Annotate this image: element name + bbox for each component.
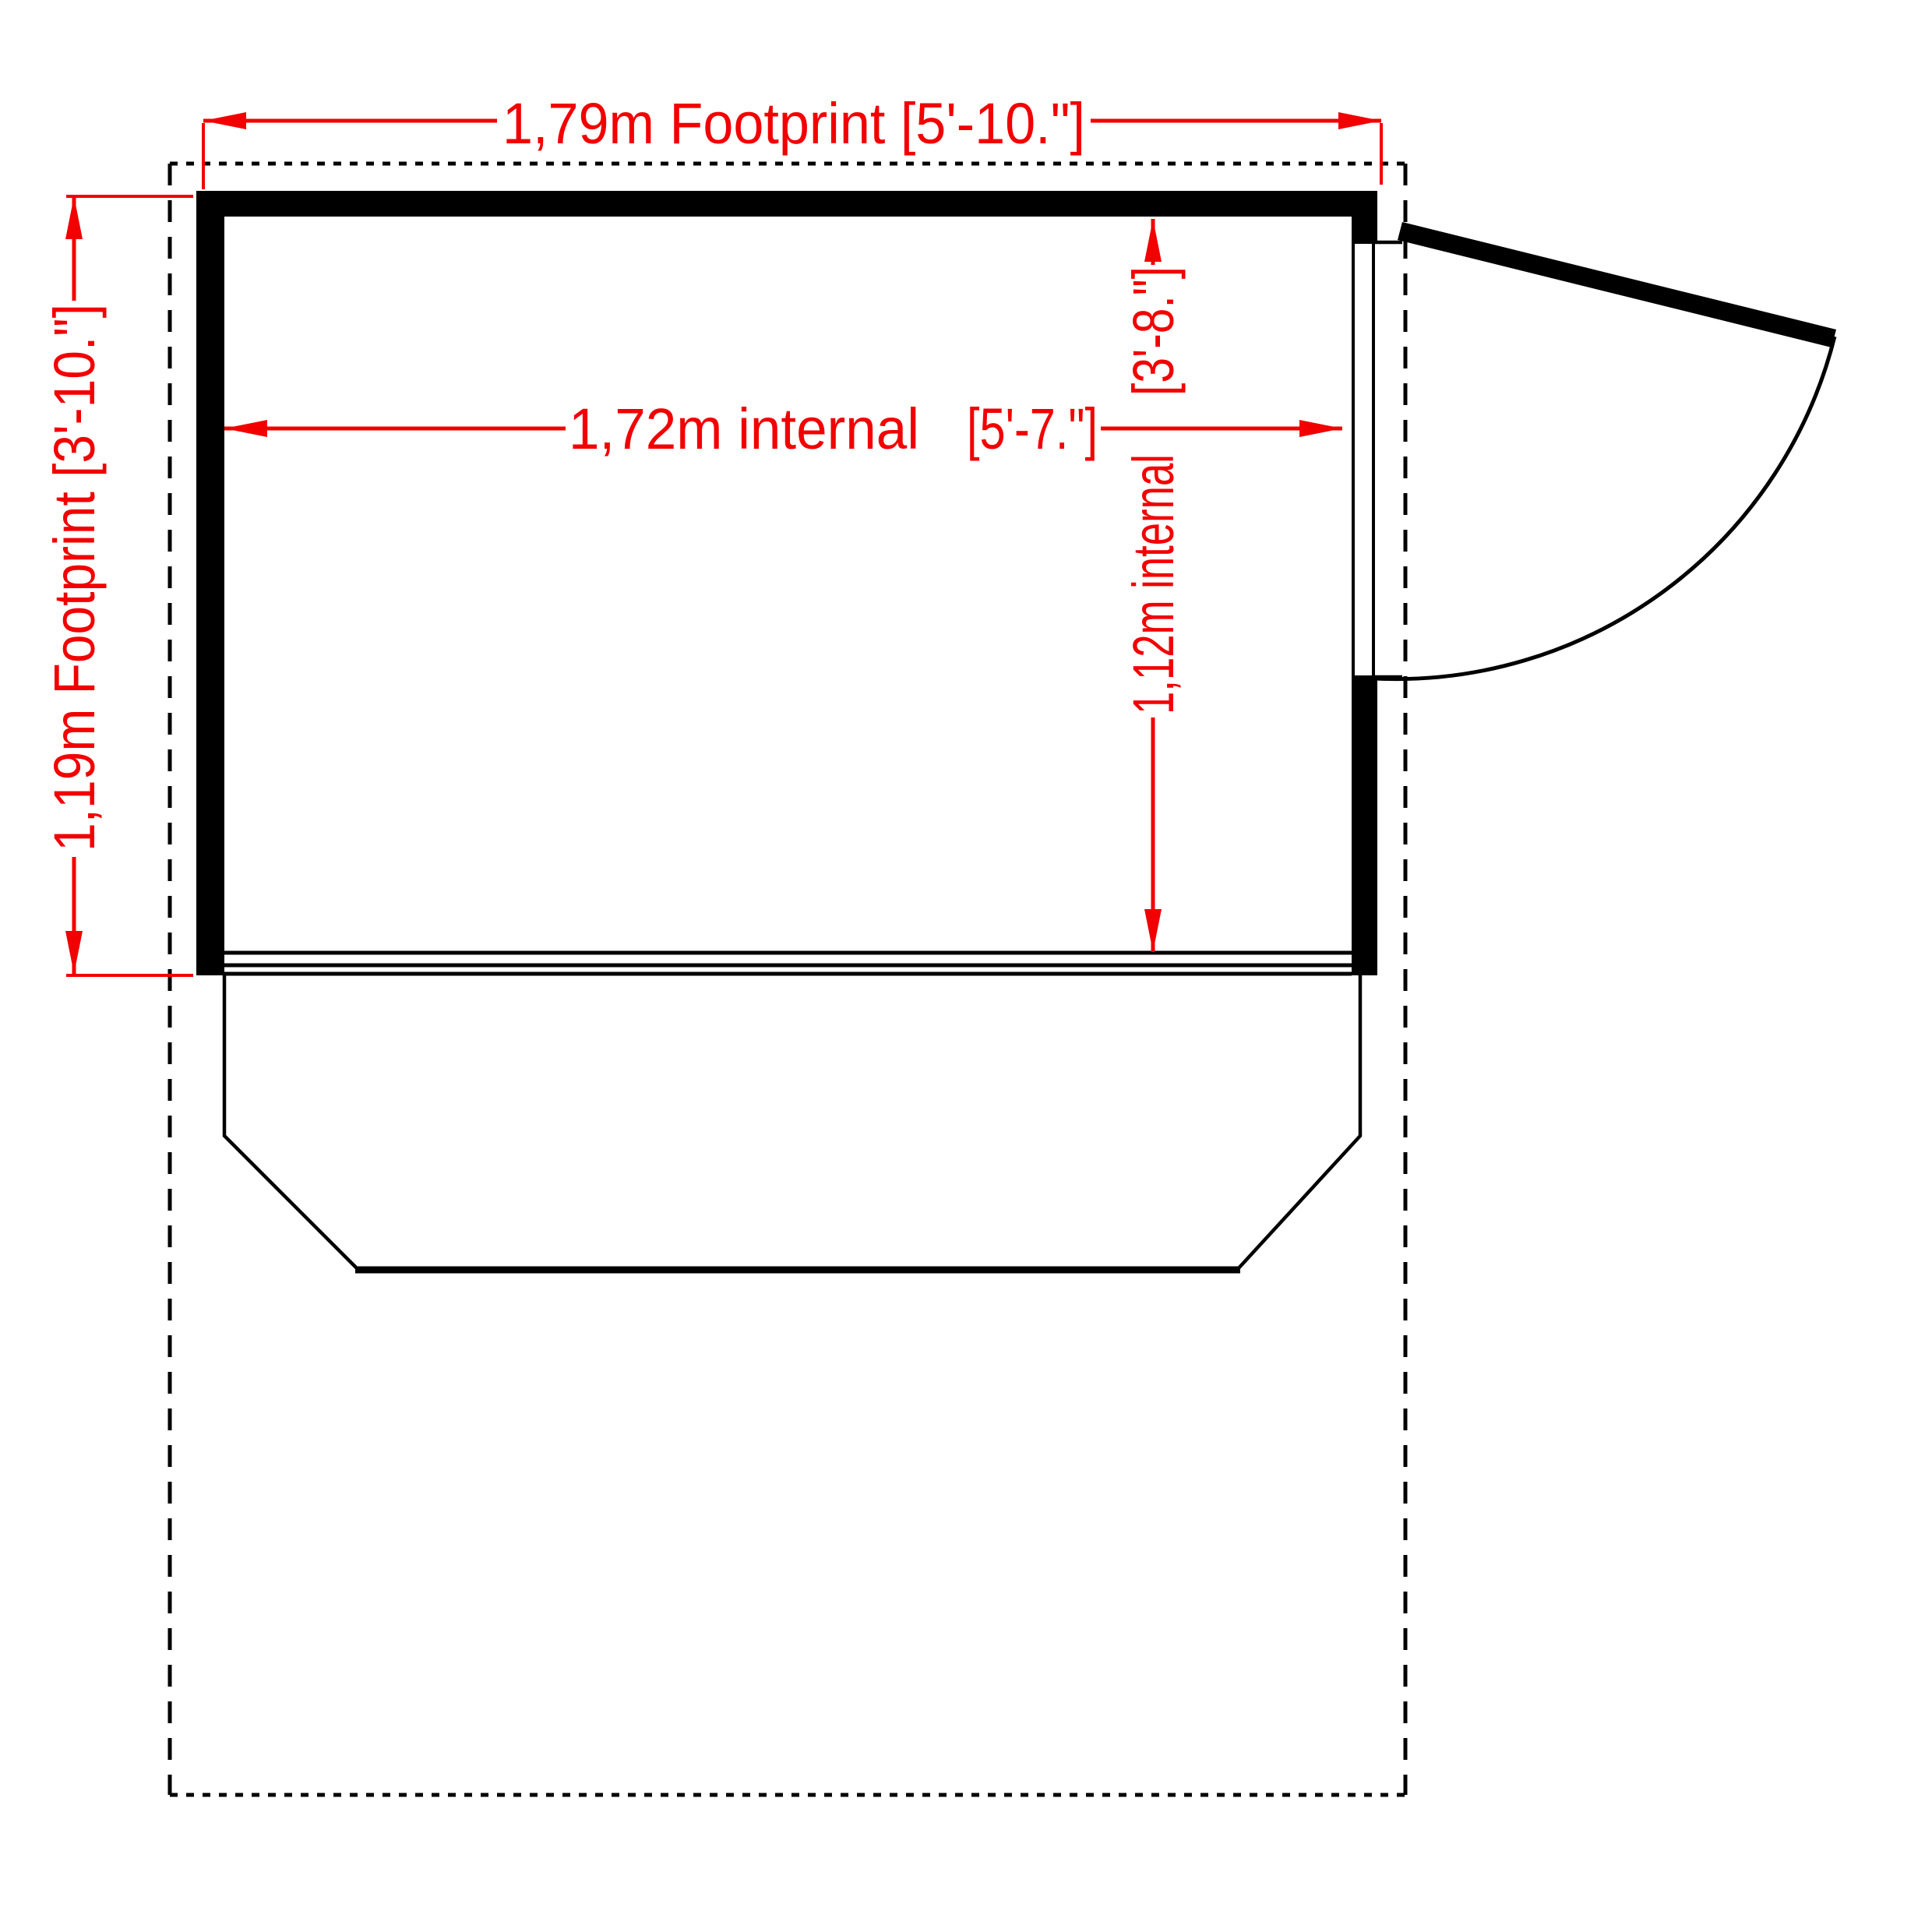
dim-label-internal-depth-imperial: [3'-8."] <box>1121 266 1186 396</box>
dim-arrow <box>65 931 83 974</box>
dim-internal-width: 1,72m internal [5'-7."] <box>224 397 1342 461</box>
door-frame <box>1353 242 1373 677</box>
dim-arrow <box>224 420 267 437</box>
door-swing-arc <box>1376 337 1835 679</box>
right-wall-below-door <box>1352 677 1377 975</box>
door-leaf <box>1398 222 1836 347</box>
dim-arrow <box>203 112 246 129</box>
dim-arrow <box>1338 112 1381 129</box>
dim-label-internal-depth-metric: 1,12m internal <box>1121 454 1186 714</box>
dim-arrow <box>1144 909 1162 952</box>
dim-internal-depth: [3'-8."] 1,12m internal <box>1121 219 1186 952</box>
dim-label-internal-width-metric: 1,72m internal <box>569 397 919 461</box>
bay-outline <box>224 975 1360 1270</box>
dim-arrow <box>1144 219 1162 262</box>
walls <box>196 191 1377 975</box>
floor-plan-drawing: 1,79m Footprint [5'-10."] 1,19m Footprin… <box>0 0 1932 1932</box>
door <box>1353 222 1836 679</box>
dim-footprint-width: 1,79m Footprint [5'-10."] <box>203 91 1381 189</box>
window-band <box>224 953 1352 974</box>
front-bay <box>224 975 1360 1270</box>
left-wall <box>196 191 224 975</box>
dim-label-footprint-depth: 1,19m Footprint [3'-10."] <box>42 304 107 851</box>
dim-arrow <box>65 196 83 239</box>
right-wall-above-door <box>1352 191 1377 242</box>
floor-plan-page: 1,79m Footprint [5'-10."] 1,19m Footprin… <box>0 0 1932 1932</box>
dim-label-internal-width-imperial: [5'-7."] <box>967 397 1098 461</box>
dim-label-footprint-width: 1,79m Footprint [5'-10."] <box>502 91 1085 156</box>
dim-arrow <box>1299 420 1342 437</box>
top-wall <box>196 191 1377 217</box>
